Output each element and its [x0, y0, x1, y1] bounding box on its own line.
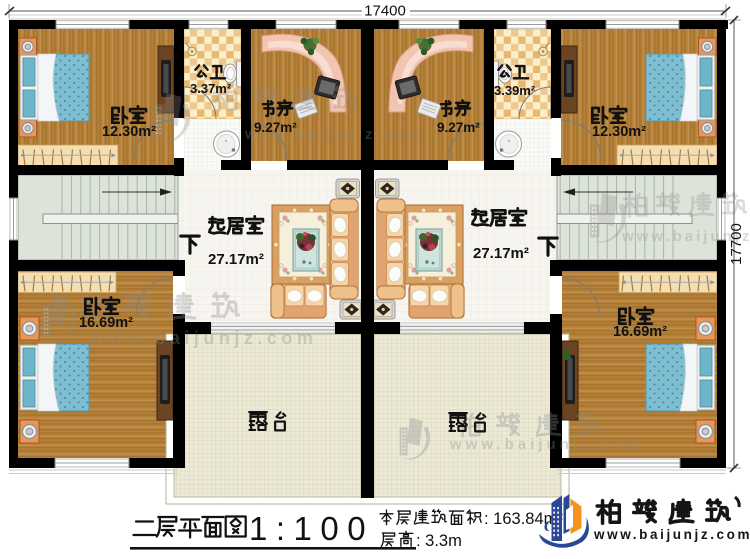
svg-text:www.baijunjz.com: www.baijunjz.com [89, 328, 317, 348]
svg-text:: 3.3m: : 3.3m [416, 532, 462, 550]
svg-text:17700: 17700 [728, 223, 745, 265]
svg-text:16.69m²: 16.69m² [79, 315, 133, 331]
svg-text:12.30m²: 12.30m² [102, 124, 156, 140]
svg-text:16.69m²: 16.69m² [613, 324, 667, 340]
svg-text:17400: 17400 [364, 3, 406, 20]
svg-text:www.baijunjz.com: www.baijunjz.com [593, 527, 750, 542]
svg-text:www.baijunjz.com: www.baijunjz.com [449, 436, 643, 453]
svg-text:3.37m²: 3.37m² [190, 81, 232, 96]
svg-text:27.17m²: 27.17m² [208, 251, 264, 268]
svg-text:27.17m²: 27.17m² [473, 245, 529, 262]
svg-text:9.27m²: 9.27m² [437, 120, 480, 135]
svg-text:: 163.84m²: : 163.84m² [484, 510, 563, 528]
svg-text:3.39m²: 3.39m² [494, 83, 536, 98]
svg-text:9.27m²: 9.27m² [254, 120, 297, 135]
svg-text:12.30m²: 12.30m² [592, 124, 646, 140]
svg-text:1:100: 1:100 [249, 510, 374, 547]
